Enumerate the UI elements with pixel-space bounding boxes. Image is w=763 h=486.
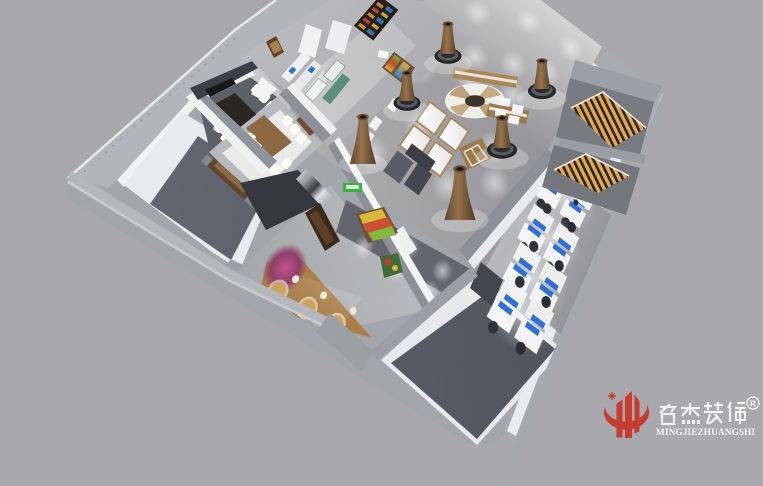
svg-text:MINGJIEZHUANGSHI: MINGJIEZHUANGSHI [656,428,756,438]
svg-text:R: R [750,399,756,409]
